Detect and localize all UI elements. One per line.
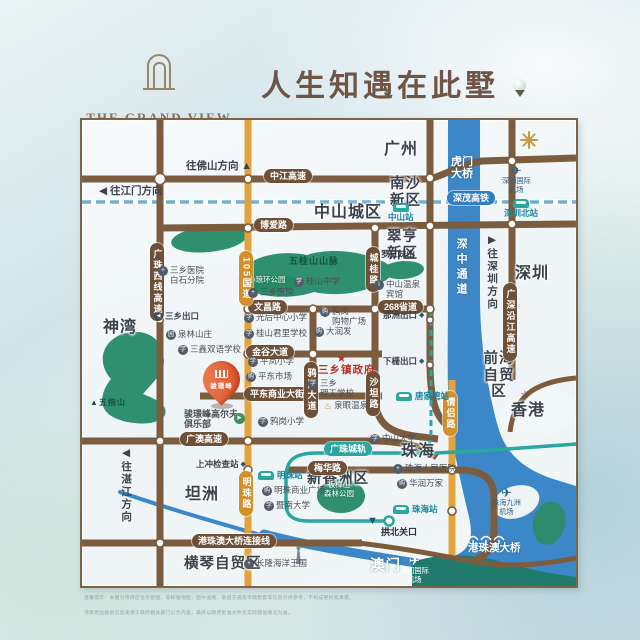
road-guangao: 广澳高速 [180, 432, 228, 446]
station-label: 唐家湾站 [415, 392, 449, 402]
hospital-icon: + [393, 464, 403, 474]
road-hzmb-link: 港珠澳大桥连接线 [192, 534, 276, 548]
project-pin: 骏璟峰 [195, 353, 247, 405]
airport-macau: ✈澳门国际 机场 [400, 554, 429, 584]
building-icon [215, 370, 228, 378]
diamond-icon: ◆ [241, 461, 246, 469]
train-icon [396, 392, 412, 401]
poi-label: 暨南大学 [276, 501, 310, 511]
university-icon: 学 [370, 434, 380, 444]
poi-label: 长隆海洋王国 [256, 559, 307, 569]
shop-icon: 购 [262, 486, 272, 496]
exit-icon: ◀ [154, 312, 163, 321]
school-icon: 学 [248, 357, 258, 367]
road-shatan: 沙坦路 [366, 371, 380, 416]
poi-guishan-school: 学桂山中学 [294, 277, 340, 287]
poi-label: 三乡医院 [260, 288, 294, 298]
exit-label: 三乡出口 [165, 312, 199, 322]
disclaimer-line1: 温馨提示：本图为项目区位示意图，非标准地图，图中道路、轨道交通及市政配套等信息仅… [84, 595, 424, 602]
dir-zhanjiang: ◀往湛江方向 [120, 447, 132, 524]
road-zhongjiang: 中江高速 [264, 169, 312, 183]
train-icon [393, 203, 409, 212]
poi-sanxin-school: 学三鑫双语学校 [178, 345, 241, 355]
school-icon: 学 [308, 379, 318, 389]
hospital-icon: + [158, 266, 168, 276]
poi-wenquan-hotel: i中山温泉 宾馆 [374, 280, 420, 300]
train-icon [258, 471, 274, 480]
station-shenzhen-north: 深圳北站 [504, 199, 538, 219]
school-icon: 学 [244, 329, 254, 339]
golf-ball-icon [513, 79, 527, 97]
label-wuguishan: 五桂山山脉 [289, 256, 339, 266]
rail-terminus [385, 517, 394, 526]
poi-zhongshan-univ: 学中山大学 [370, 434, 416, 444]
poi-label: 三乡 理工学校 [320, 379, 354, 399]
dir-shenzhen: ▶往深圳方向 [486, 234, 498, 311]
attraction-icon: + [244, 559, 254, 569]
sun-burst-icon [520, 131, 538, 149]
slogan: 人生知遇在此墅 [261, 70, 499, 105]
station-zhuhai: 珠海站 [393, 505, 438, 515]
school-icon: 学 [244, 313, 254, 323]
info-icon: i [374, 280, 384, 290]
poi-changlong: +长隆海洋王国 [244, 559, 307, 569]
shop-icon: 购 [397, 479, 407, 489]
poi-pingdong-market: 购平东市场 [246, 372, 292, 382]
exit-label: 那洲出口 [383, 311, 417, 321]
poi-label: 中山温泉 宾馆 [386, 280, 420, 300]
rail-gzcg-badge: 广珠城轨 [324, 442, 372, 456]
poi-quanlin: 园泉林山庄 [166, 330, 212, 340]
poi-label: 平东市场 [258, 372, 292, 382]
poi-junli-school: 学桂山君里学校 [244, 329, 307, 339]
checkpoint-shangchong: 上冲检查站◆ [196, 460, 246, 470]
gate-icon: ▼ [367, 515, 378, 528]
poi-mingzhu-mall: 购明珠商业广场 [262, 486, 325, 496]
diamond-icon: ◆ [419, 312, 424, 320]
train-icon [393, 505, 409, 514]
poi-label: 华润万家 [409, 479, 443, 489]
region-zhongshan-city: 中山城区 [314, 204, 382, 222]
poi-quanyan: ♨泉眼温泉 [324, 401, 368, 411]
shop-icon: 购 [246, 372, 256, 382]
poi-gongbei: 拱北关口 [381, 527, 417, 537]
poi-hospital-baishi: +三乡医院 白石分院 [158, 266, 204, 286]
shop-icon: 购 [314, 327, 324, 337]
station-label: 珠海站 [412, 505, 438, 515]
hk-star-icon: ☆ [520, 389, 530, 402]
project-name: 骏璟峰 [210, 380, 233, 390]
poi-label: 光后中心小学 [256, 313, 307, 323]
poi-label: 平岚小学 [260, 357, 294, 367]
poi-zhuhai-hospital: +珠海人民医院 [393, 464, 456, 474]
poi-label: 鸦岗 购物广场 [332, 307, 366, 327]
road-meihua: 梅华路 [308, 461, 347, 475]
poi-hospital-sanxiang: +三乡医院 [248, 288, 294, 298]
poi-yagang-school: 学鸦岗小学 [258, 417, 304, 427]
airport-shenzhen: ✈深圳国际 机场 [502, 164, 531, 194]
dir-foshan: 往佛山方向 ▲ [186, 160, 252, 172]
station-mingzhu: 明珠站 [258, 471, 303, 481]
station-label: 明珠站 [277, 471, 303, 481]
region-zhuhai: 珠海 [401, 443, 435, 461]
exit-label: 下栅出口 [383, 357, 417, 367]
arch-logo-icon [147, 54, 171, 88]
golf-flag-icon: ▶ [234, 413, 245, 424]
label-hzmb: 港珠澳大桥 [468, 543, 521, 555]
poi-pinglan-school: 学平岚小学 [248, 357, 294, 367]
poi-jinan-univ: 学暨南大学 [264, 501, 310, 511]
diamond-icon: ◆ [419, 358, 424, 366]
label-szz-corridor: 深中通道 [455, 238, 467, 298]
school-icon: 学 [178, 345, 188, 355]
poi-gov: 三乡镇政府 [318, 364, 376, 376]
station-tangjiawan: 唐家湾站 [396, 392, 449, 402]
poi-label: 大润发 [326, 327, 352, 337]
region-hongkong: 香港 [511, 402, 545, 420]
disclaimer: 温馨提示：本图为项目区位示意图，非标准地图，图中道路、轨道交通及市政配套等信息仅… [84, 588, 424, 624]
road-boai: 博爱路 [254, 218, 293, 232]
airport-label: 澳门国际 机场 [400, 567, 429, 584]
poi-ligong-school: 学三乡 理工学校 [308, 379, 354, 399]
poi-label: 桂山中学 [306, 277, 340, 287]
dir-jiangmen: ◀ 往江门方向 [99, 185, 163, 197]
exit-xiazha: 下栅出口◆ [383, 357, 424, 367]
park-icon: 园 [166, 330, 176, 340]
poi-label: 桂山君里学校 [256, 329, 307, 339]
university-icon: 学 [264, 501, 274, 511]
school-icon: 学 [294, 277, 304, 287]
region-tanzhou: 坦洲 [185, 486, 219, 504]
region-shenwan: 神湾 [103, 319, 137, 337]
station-label: 深圳北站 [504, 209, 538, 219]
poi-huarun: 购华润万家 [397, 479, 443, 489]
region-shenzhen: 深圳 [515, 265, 549, 283]
poi-label: 泉眼温泉 [334, 401, 368, 411]
label-luosanmei: 罗三妹山 [381, 250, 415, 260]
poi-label: 珠海人民医院 [405, 464, 456, 474]
exit-nazhou: 那洲出口◆ [383, 311, 424, 321]
region-guangzhou: 广州 [384, 141, 418, 159]
project-club-label: 骏璟峰高尔夫 俱乐部 [184, 409, 238, 430]
label-xiaolanghuan: 小琅环公园 [248, 276, 286, 285]
rail-szmao-badge: 深茂高铁 [447, 191, 495, 205]
train-icon [513, 199, 529, 208]
region-macau: 澳门 [370, 558, 401, 575]
poi-guanghou-school: 学光后中心小学 [244, 313, 307, 323]
hospital-icon: + [248, 288, 258, 298]
poi-label: 三乡医院 白石分院 [170, 266, 204, 286]
label-humen-bridge: 虎门 大桥 [451, 156, 477, 180]
poi-label: 三鑫双语学校 [190, 345, 241, 355]
poi-label: 明珠商业广场 [274, 486, 325, 496]
exit-sanxiang: ◀三乡出口 [154, 312, 199, 322]
label-wuzhishan: ▲五指山 [90, 398, 126, 407]
station-zhongshan: 中山站 [388, 203, 414, 223]
hotspring-icon: ♨ [324, 401, 332, 411]
school-icon: 学 [258, 417, 268, 427]
exit-label: 上冲检查站 [196, 460, 239, 470]
road-mingzhu: 明珠路 [239, 471, 253, 516]
station-label: 中山站 [388, 213, 414, 223]
airport-label: 珠海九洲 机场 [492, 499, 521, 516]
poi-label: 中山大学 [382, 434, 416, 444]
shop-icon: 购 [320, 307, 330, 317]
road-pingdong: 平东商业大街 [244, 387, 310, 401]
poi-rtmart: 购大润发 [314, 327, 352, 337]
poi-label: 鸦岗小学 [270, 417, 304, 427]
road-gsyj: 广深沿江高速 [503, 283, 517, 361]
airport-jiuzhou: ✈珠海九洲 机场 [492, 486, 521, 516]
poi-label: 泉林山庄 [178, 330, 212, 340]
airport-label: 深圳国际 机场 [502, 177, 531, 194]
poi-yagang-mall: 购鸦岗 购物广场 [320, 307, 366, 327]
disclaimer-line2: 项目周边规划信息来源于政府相关部门公示内容，最终以政府批准文件及实际建设情况为准… [84, 610, 424, 617]
